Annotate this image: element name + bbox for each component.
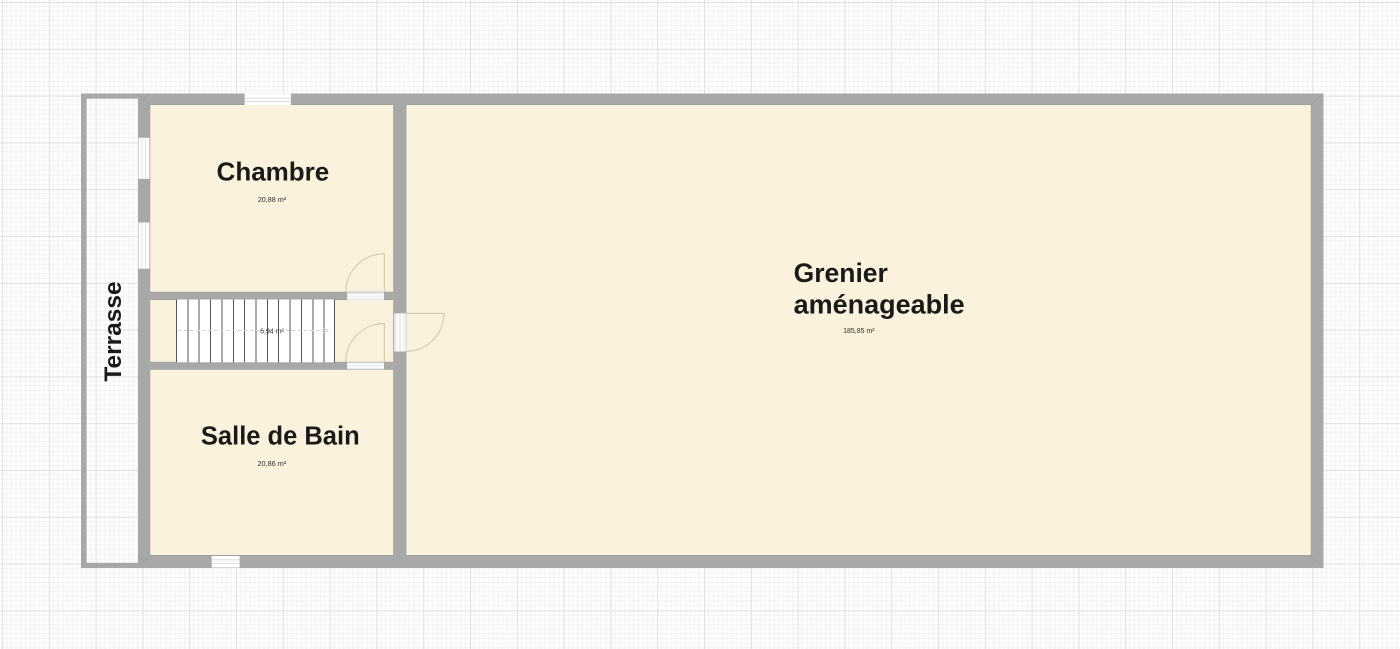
svg-text:Salle de Bain: Salle de Bain xyxy=(201,423,360,451)
svg-text:6,94 m²: 6,94 m² xyxy=(260,329,284,336)
svg-text:aménageable: aménageable xyxy=(794,290,965,320)
svg-text:185,85 m²: 185,85 m² xyxy=(843,328,875,335)
svg-text:20,88 m²: 20,88 m² xyxy=(258,195,287,204)
svg-text:20,86 m²: 20,86 m² xyxy=(258,459,287,468)
svg-text:Grenier: Grenier xyxy=(794,258,888,288)
svg-text:Chambre: Chambre xyxy=(217,156,330,186)
svg-text:Terrasse: Terrasse xyxy=(100,281,127,381)
